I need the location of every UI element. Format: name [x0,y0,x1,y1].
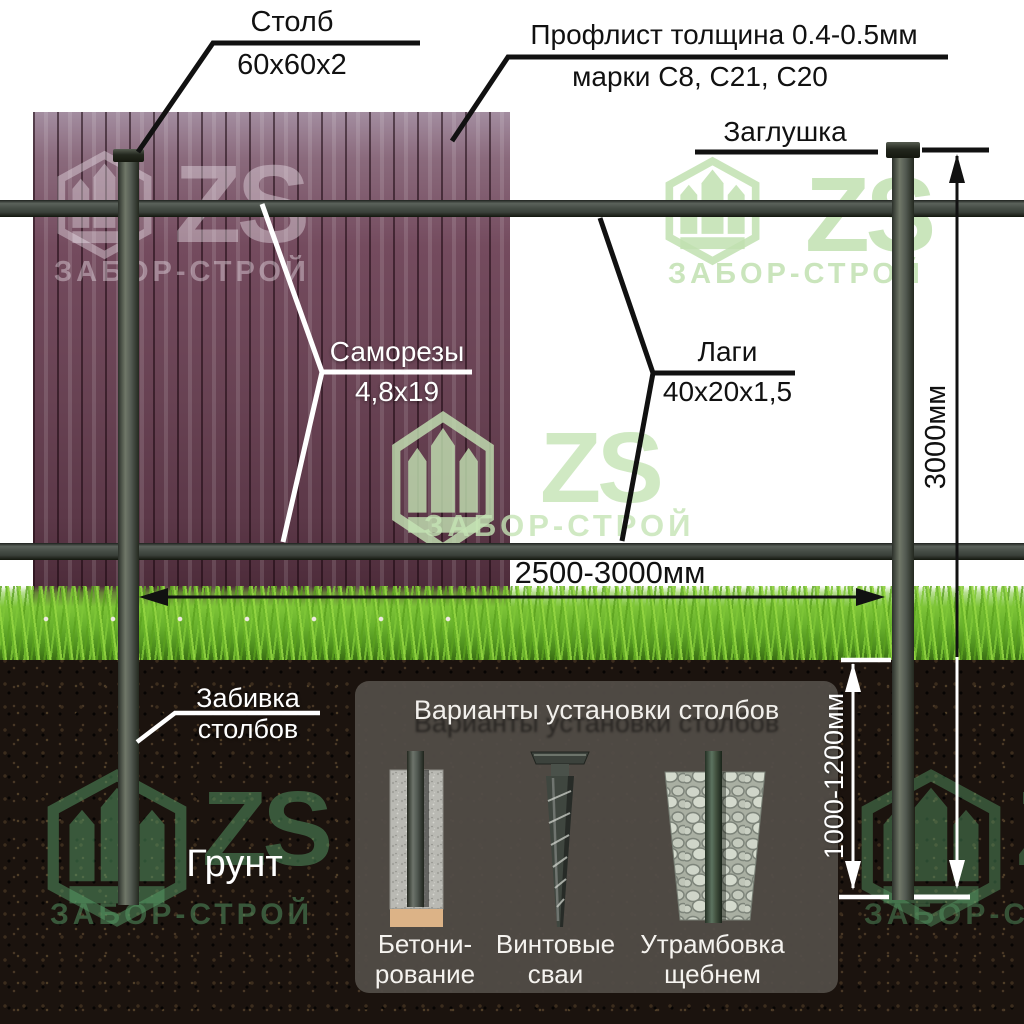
caption-line: щебнем [610,959,815,989]
screws-label: Саморезы [315,336,479,367]
driving-label-line2: столбов [168,714,328,745]
grass-strip [0,586,1024,660]
watermark-initials: ZS [540,418,660,518]
installation-options-panel: Варианты установки столбов [355,681,838,993]
sheet-bottom-screws [42,616,502,623]
sheet-label: Профлист толщина 0.4-0.5мм [500,19,948,50]
depth-dimension-label: 1000-1200мм [819,693,849,859]
screw-pile-illustration [531,752,589,927]
post-label: Столб [212,6,372,38]
screws-size-label: 4,8х19 [315,376,479,407]
caption-line: Бетони- [355,929,495,959]
caption-line: рование [355,959,495,989]
cap-label: Заглушка [695,116,875,147]
left-post-cap [113,149,144,162]
concreting-illustration [390,751,443,927]
option-crushed-stone-caption: Утрамбовка щебнем [610,929,815,989]
right-post-cap [886,142,920,158]
sheet-grade-label: марки С8, С21, С20 [500,61,900,92]
span-dimension-label: 2500-3000мм [430,556,790,591]
option-screw-piles-caption: Винтовые сваи [483,929,628,989]
caption-line: Винтовые [483,929,628,959]
watermark-brand: ЗАБОР-СТРОЙ [668,258,924,291]
caption-line: сваи [483,959,628,989]
rails-label: Лаги [640,336,815,367]
left-post [118,152,139,905]
rails-size-label: 40х20х1,5 [640,376,815,407]
caption-line: Утрамбовка [610,929,815,959]
driving-label: Забивка столбов [168,683,328,745]
post-height-dimension-label: 3000мм [920,385,952,489]
post-size-label: 60х60х2 [207,49,377,81]
ground-label: Грунт [152,843,317,886]
right-post [892,145,914,900]
fence-installation-diagram: ZS ЗАБОР-СТРОЙ ZS ЗАБОР-СТРОЙ ZS ЗАБОР-С… [0,0,1024,1024]
option-concreting-caption: Бетони- рование [355,929,495,989]
top-rail [0,200,1024,217]
crushed-stone-illustration [665,751,765,923]
driving-label-line1: Забивка [168,683,328,714]
